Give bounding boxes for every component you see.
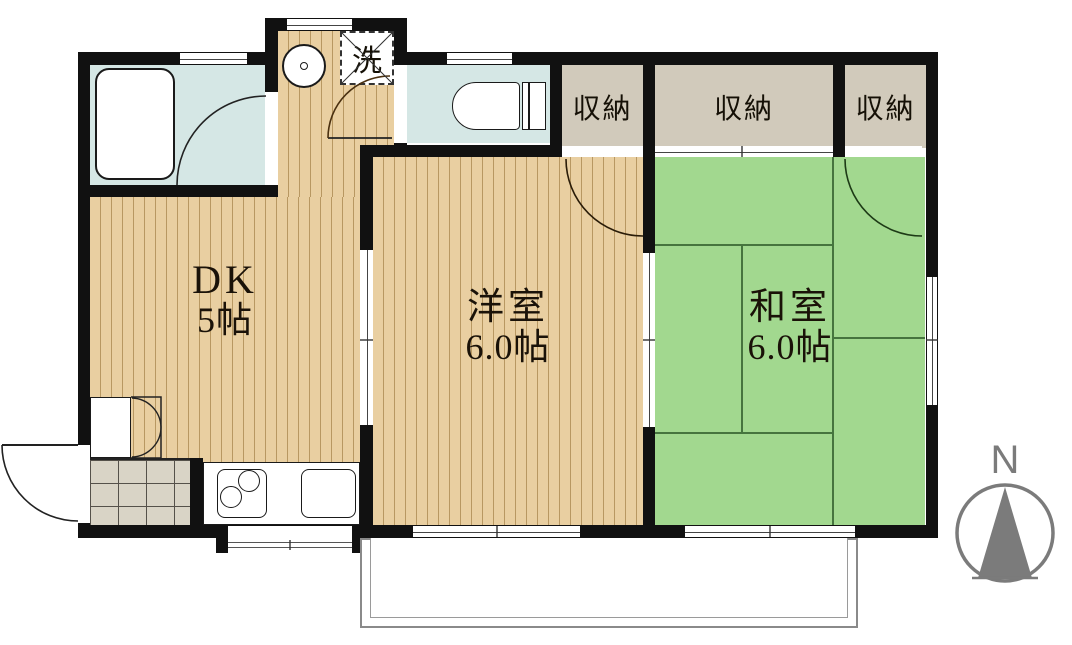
japanese-room-label: 和室 6.0帖 xyxy=(655,288,925,367)
toilet-window xyxy=(447,53,512,64)
kitchen-door-opening xyxy=(228,526,352,554)
western-japanese-sliding-door xyxy=(643,253,655,427)
western-size: 6.0帖 xyxy=(373,328,643,367)
stove-burner xyxy=(238,470,260,492)
closet1-label: 収納 xyxy=(562,65,643,148)
wall xyxy=(833,52,845,157)
dk-room-label: DK 5帖 xyxy=(90,258,360,340)
compass-north-icon xyxy=(957,485,1053,581)
compass-north-label: N xyxy=(980,438,1030,483)
wall xyxy=(550,52,562,157)
wall xyxy=(78,185,278,197)
closet3-label: 収納 xyxy=(845,65,926,148)
bathroom-door-opening xyxy=(265,92,278,185)
laundry-label: 洗 xyxy=(340,31,394,85)
entrance-opening xyxy=(78,445,90,523)
japanese-name: 和室 xyxy=(655,288,925,328)
bathroom-window xyxy=(180,53,247,64)
bathtub xyxy=(95,68,175,180)
wall xyxy=(360,145,562,157)
toilet-bowl-icon xyxy=(452,82,520,130)
toilet-tank xyxy=(522,82,546,130)
western-name: 洋室 xyxy=(373,288,643,328)
closet2-label: 収納 xyxy=(655,65,833,148)
japanese-size: 6.0帖 xyxy=(655,328,925,367)
toilet-door-opening xyxy=(394,65,407,143)
japanese-room-side-window xyxy=(927,277,937,405)
japanese-balcony-window xyxy=(685,526,855,537)
wall xyxy=(190,458,203,525)
shoe-cabinet xyxy=(90,397,131,458)
wall xyxy=(265,18,278,64)
tatami-line xyxy=(655,244,833,246)
washroom-window xyxy=(287,19,352,30)
wall xyxy=(216,525,228,553)
balcony-inner-rail xyxy=(370,538,848,618)
western-room-label: 洋室 6.0帖 xyxy=(373,288,643,367)
dk-western-sliding-door xyxy=(360,250,373,425)
tatami-line xyxy=(655,432,833,434)
washbasin-drain xyxy=(300,62,308,70)
stove-burner xyxy=(220,486,242,508)
western-balcony-window xyxy=(413,526,580,537)
floor-plan: DK 5帖 洋室 6.0帖 和室 6.0帖 収納 収納 収納 洗 N xyxy=(0,0,1072,645)
wall xyxy=(78,52,278,65)
entry-tile-floor xyxy=(90,458,190,527)
dk-name: DK xyxy=(90,258,360,301)
kitchen-sink xyxy=(301,469,356,518)
dk-size: 5帖 xyxy=(90,301,360,340)
wall xyxy=(265,64,278,92)
